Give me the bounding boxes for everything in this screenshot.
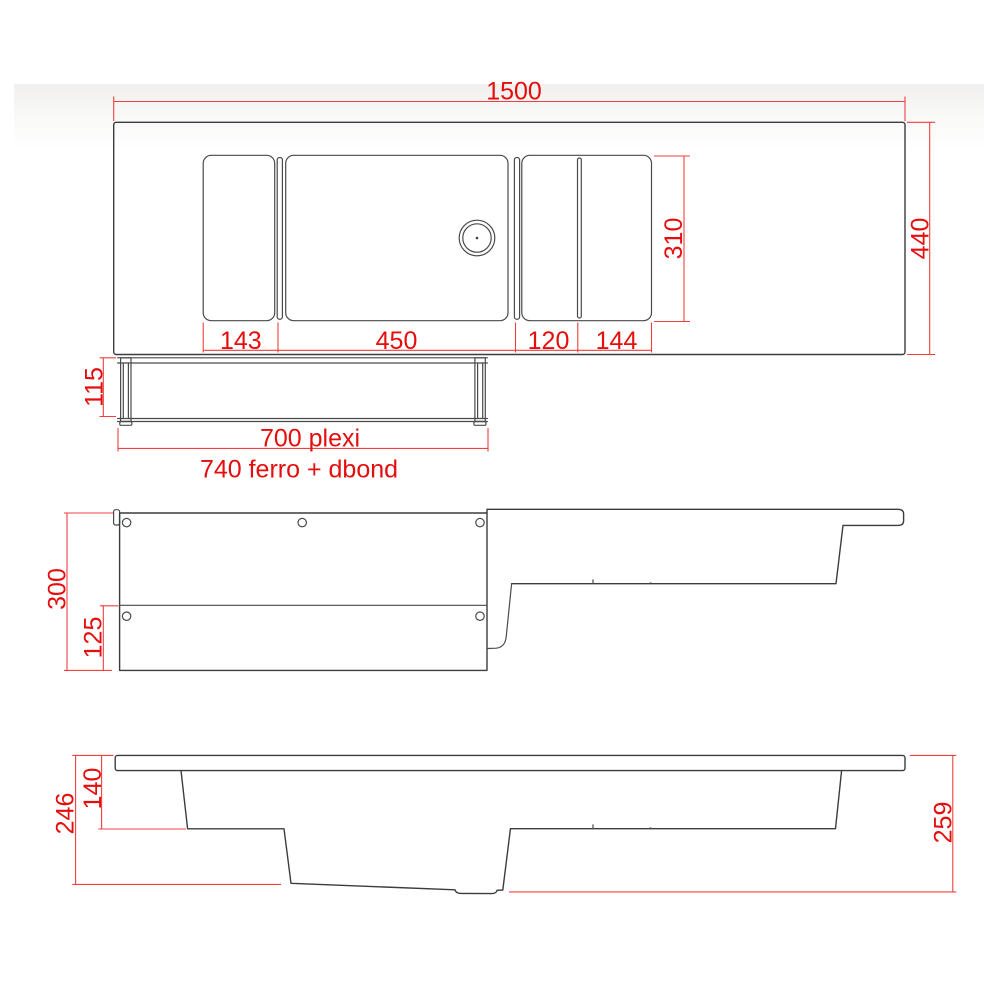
mount-hole bbox=[476, 518, 484, 526]
panel-basin-cover bbox=[286, 155, 508, 320]
counter-slab bbox=[115, 755, 905, 770]
dim-line-140 bbox=[98, 755, 186, 829]
basin-underside-profile bbox=[181, 771, 842, 894]
shelf-foot-right bbox=[474, 422, 486, 426]
divider-strip-1 bbox=[277, 158, 282, 320]
dim-text-440: 440 bbox=[907, 218, 935, 260]
dim-text-300: 300 bbox=[44, 568, 72, 610]
shelf-post-right bbox=[475, 358, 485, 422]
countertop-outline bbox=[114, 122, 905, 354]
panel-top-tab bbox=[114, 510, 120, 525]
dim-text-259: 259 bbox=[930, 802, 958, 844]
dim-text-120: 120 bbox=[528, 327, 570, 355]
dim-text-700-plexi: 700 plexi bbox=[260, 425, 360, 453]
shelf-rails bbox=[118, 358, 488, 422]
front-panel-outline bbox=[120, 513, 487, 670]
shelf-post-left-inner bbox=[123, 363, 128, 419]
profile-dot bbox=[650, 582, 652, 584]
technical-drawing-page: 1500 440 310 143 450 120 144 115 bbox=[0, 0, 1000, 1000]
dim-text-740-ferro-dbond: 740 ferro + dbond bbox=[200, 456, 398, 484]
dim-text-310: 310 bbox=[660, 218, 688, 260]
dim-text-125: 125 bbox=[80, 617, 108, 659]
profile-dot bbox=[650, 827, 652, 829]
shelf-view: 115 700 plexi 740 ferro + dbond bbox=[81, 358, 489, 484]
shelf-post-right-inner bbox=[478, 363, 483, 419]
divider-strip-2 bbox=[514, 158, 519, 320]
dim-text-450: 450 bbox=[376, 327, 418, 355]
dim-line-259 bbox=[509, 755, 956, 892]
mount-hole bbox=[122, 518, 130, 526]
front-panel-side-profile-view: 300 125 bbox=[44, 509, 904, 670]
shelf-post-left bbox=[121, 358, 131, 422]
front-elevation-view: 140 246 259 bbox=[52, 755, 958, 893]
mount-hole bbox=[298, 518, 306, 526]
dim-text-140: 140 bbox=[79, 768, 107, 810]
mount-hole bbox=[476, 612, 484, 620]
dim-text-246: 246 bbox=[52, 793, 80, 835]
top-view: 1500 440 310 143 450 120 144 bbox=[114, 78, 935, 355]
sink-dimension-drawing: 1500 440 310 143 450 120 144 115 bbox=[0, 0, 1000, 1000]
dim-line-segments bbox=[203, 323, 651, 353]
mount-hole bbox=[122, 612, 130, 620]
divider-strip-3 bbox=[578, 158, 582, 318]
dim-text-115: 115 bbox=[81, 367, 109, 407]
drain-funnel-profile bbox=[488, 584, 512, 649]
drain-center-mark bbox=[476, 237, 479, 240]
dim-text-1500: 1500 bbox=[486, 78, 542, 106]
panel-right bbox=[522, 155, 652, 320]
dim-text-144: 144 bbox=[596, 327, 638, 355]
shelf-foot-left bbox=[120, 422, 132, 426]
dim-text-143: 143 bbox=[220, 327, 262, 355]
basin-side-profile bbox=[487, 509, 904, 583]
panel-left bbox=[203, 155, 275, 320]
